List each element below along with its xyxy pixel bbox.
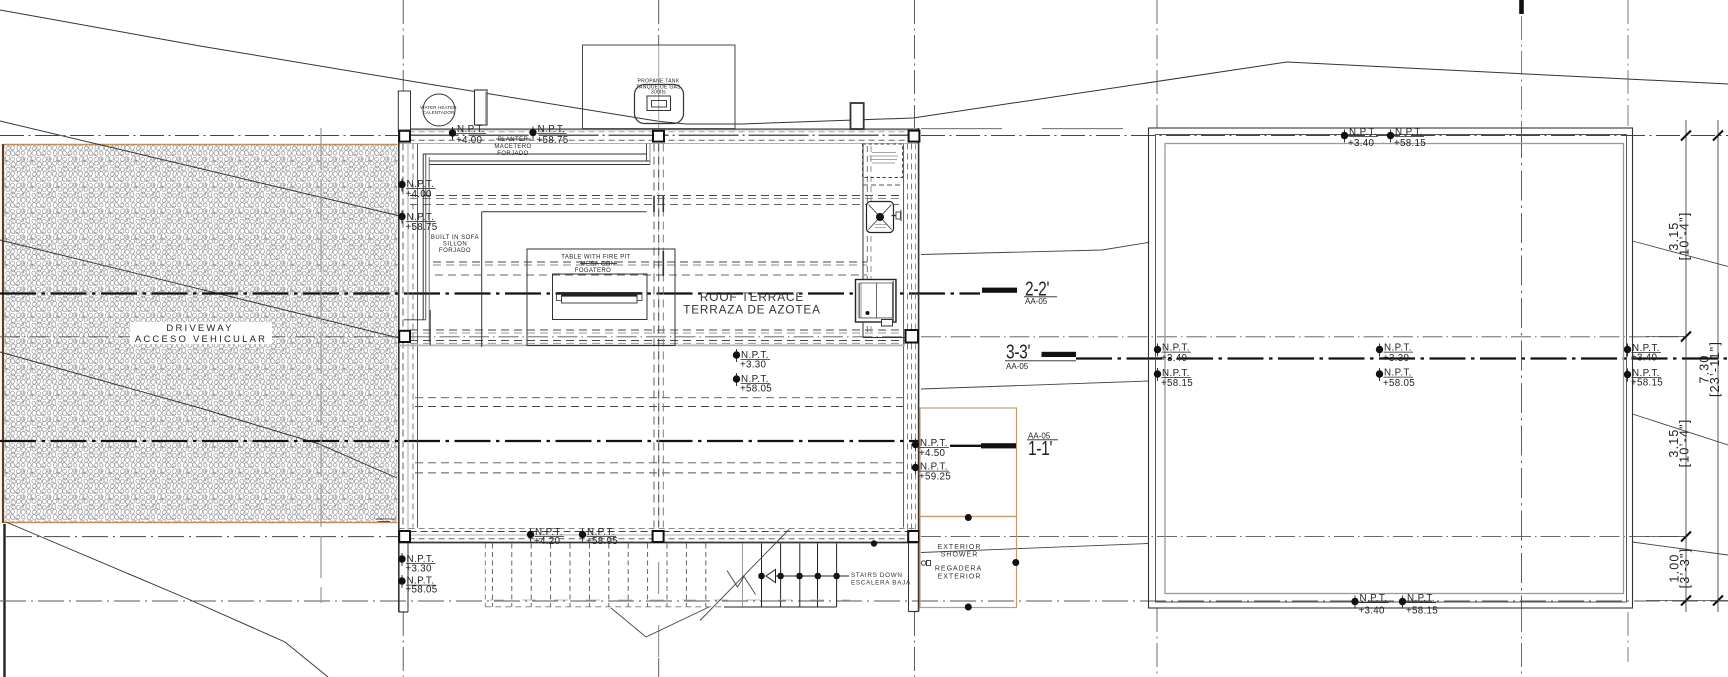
svg-text:SILLON: SILLON: [443, 242, 467, 248]
svg-text:+4.00: +4.00: [406, 189, 433, 200]
svg-text:STAIRS DOWN: STAIRS DOWN: [851, 572, 903, 579]
svg-text:FORJADO: FORJADO: [497, 151, 528, 157]
svg-text:REGADERA: REGADERA: [935, 566, 982, 573]
svg-text:+3.40: +3.40: [1348, 138, 1375, 149]
svg-text:+58.05: +58.05: [406, 585, 438, 596]
svg-text:TABLE WITH FIRE PIT: TABLE WITH FIRE PIT: [561, 255, 631, 261]
svg-text:+3.40: +3.40: [1161, 353, 1188, 364]
svg-text:1-1': 1-1': [1028, 437, 1052, 460]
svg-text:[3’-3"]: [3’-3"]: [1678, 548, 1692, 589]
svg-text:[10’-4"]: [10’-4"]: [1678, 212, 1692, 261]
svg-text:PLANTER: PLANTER: [498, 137, 529, 143]
svg-text:ESCALERA BAJA: ESCALERA BAJA: [851, 580, 911, 587]
svg-text:+3.30: +3.30: [406, 564, 433, 575]
svg-text:+58.15: +58.15: [1406, 606, 1438, 617]
svg-text:+4.20: +4.20: [534, 536, 561, 547]
svg-text:+58.75: +58.75: [406, 222, 438, 233]
svg-text:3-3': 3-3': [1006, 340, 1030, 363]
svg-text:EXTERIOR: EXTERIOR: [938, 544, 982, 551]
svg-text:MESA CON: MESA CON: [581, 262, 616, 268]
svg-text:+58.75: +58.75: [537, 135, 569, 146]
svg-text:+3.30: +3.30: [740, 360, 767, 371]
svg-text:+58.15: +58.15: [1161, 378, 1193, 389]
svg-text:+58.15: +58.15: [1394, 138, 1426, 149]
svg-text:AA-05: AA-05: [1006, 362, 1029, 371]
svg-text:+58.05: +58.05: [740, 384, 772, 395]
svg-text:FORJADO: FORJADO: [439, 248, 471, 254]
svg-text:+58.95: +58.95: [586, 536, 618, 547]
svg-text:BUILT IN SOFA: BUILT IN SOFA: [431, 235, 479, 241]
svg-text:+58.05: +58.05: [1383, 378, 1415, 389]
svg-text:+58.15: +58.15: [1631, 378, 1663, 389]
svg-text:[10’-4"]: [10’-4"]: [1678, 419, 1692, 468]
svg-text:+59.25: +59.25: [919, 472, 951, 483]
svg-text:TERRAZA DE AZOTEA: TERRAZA DE AZOTEA: [683, 303, 821, 317]
svg-text:DRIVEWAY: DRIVEWAY: [166, 323, 233, 334]
svg-text:+4.00: +4.00: [456, 135, 483, 146]
svg-text:ACCESO VEHICULAR: ACCESO VEHICULAR: [135, 334, 267, 345]
svg-text:+4.50: +4.50: [919, 448, 946, 459]
svg-text:+3.40: +3.40: [1359, 606, 1386, 617]
svg-text:+3.40: +3.40: [1631, 353, 1658, 364]
svg-text:SHOWER: SHOWER: [941, 552, 979, 559]
svg-text:CALENTADOR: CALENTADOR: [423, 110, 455, 115]
svg-text:AA-05: AA-05: [1025, 297, 1048, 306]
svg-text:300lts: 300lts: [651, 90, 666, 96]
svg-text:FOGATERO: FOGATERO: [575, 268, 611, 274]
svg-text:[23’-11"]: [23’-11"]: [1708, 341, 1722, 397]
svg-text:+3.30: +3.30: [1383, 353, 1410, 364]
svg-text:EXTERIOR: EXTERIOR: [938, 574, 982, 581]
svg-text:MACETERO: MACETERO: [494, 144, 531, 150]
